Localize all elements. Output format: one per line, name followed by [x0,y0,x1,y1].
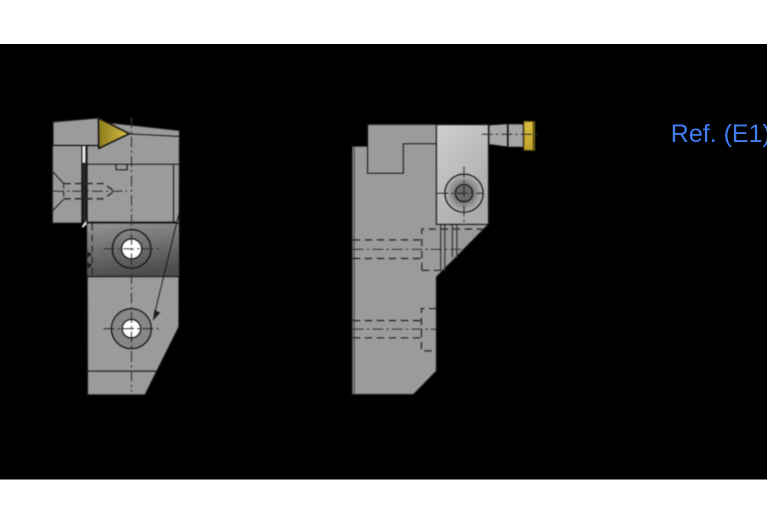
svg-text:Ref. (E1): Ref. (E1) [671,120,767,148]
